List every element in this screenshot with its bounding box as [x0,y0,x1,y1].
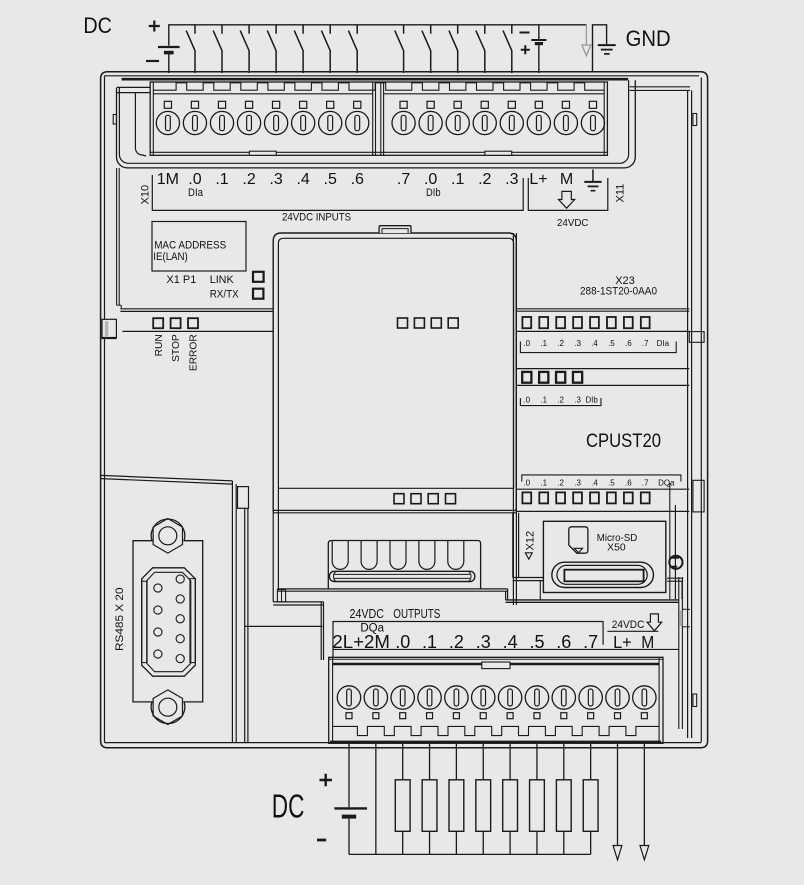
svg-text:.0: .0 [523,339,530,348]
svg-text:.4: .4 [591,478,598,487]
svg-text:.1: .1 [540,395,547,404]
svg-text:24VDC: 24VDC [350,606,385,621]
svg-text:OUTPUTS: OUTPUTS [393,606,440,621]
svg-text:.0: .0 [523,395,530,404]
svg-text:24VDC: 24VDC [557,217,589,229]
svg-text:X1 P1: X1 P1 [166,274,196,286]
svg-text:.3: .3 [574,339,581,348]
svg-text:DQa: DQa [658,478,675,487]
svg-text:.7: .7 [397,171,410,188]
svg-text:.0: .0 [395,632,410,652]
svg-text:1M: 1M [157,171,179,188]
svg-text:L+: L+ [529,171,547,188]
svg-text:.5: .5 [608,339,615,348]
svg-text:.2: .2 [557,339,564,348]
svg-text:RX/TX: RX/TX [210,289,240,301]
svg-text:ERROR: ERROR [189,334,200,371]
svg-text:L+: L+ [613,632,632,652]
svg-text:.3: .3 [505,171,518,188]
svg-text:.6: .6 [625,339,632,348]
svg-text:DIa: DIa [657,339,670,348]
svg-text:.4: .4 [591,339,598,348]
svg-text:.0: .0 [523,478,530,487]
svg-text:.7: .7 [583,632,598,652]
svg-text:.3: .3 [574,478,581,487]
svg-text:.5: .5 [324,171,337,188]
svg-text:RS485 X 20: RS485 X 20 [114,588,126,652]
svg-text:.3: .3 [269,171,282,188]
svg-text:IE(LAN): IE(LAN) [153,251,188,263]
svg-text:2L+2M: 2L+2M [332,632,390,652]
svg-text:.3: .3 [574,395,581,404]
svg-text:.2: .2 [557,395,564,404]
svg-text:X10: X10 [140,185,152,205]
svg-text:M: M [641,632,654,652]
svg-text:.2: .2 [557,478,564,487]
svg-text:.1: .1 [540,339,547,348]
svg-text:M: M [560,171,573,188]
svg-text:GND: GND [626,26,671,51]
svg-text:.4: .4 [503,632,518,652]
svg-text:.5: .5 [529,632,544,652]
svg-text:.1: .1 [451,171,464,188]
svg-text:.0: .0 [188,171,201,188]
svg-text:.2: .2 [449,632,464,652]
svg-text:.1: .1 [540,478,547,487]
svg-text:X12: X12 [524,531,536,551]
svg-text:.1: .1 [215,171,228,188]
svg-text:.2: .2 [242,171,255,188]
svg-text:MAC ADDRESS: MAC ADDRESS [154,240,226,252]
svg-text:DIb: DIb [585,395,598,404]
svg-text:.7: .7 [642,478,649,487]
svg-text:X11: X11 [615,184,627,203]
svg-text:DC: DC [272,787,305,824]
svg-text:DIa: DIa [188,187,204,199]
svg-text:.4: .4 [296,171,309,188]
svg-text:.6: .6 [625,478,632,487]
svg-text:.3: .3 [476,632,491,652]
svg-text:.7: .7 [642,339,649,348]
svg-text:288-1ST20-0AA0: 288-1ST20-0AA0 [580,286,657,298]
svg-text:.6: .6 [351,171,364,188]
svg-text:DIb: DIb [426,187,441,199]
svg-text:.2: .2 [478,171,491,188]
svg-text:24VDC INPUTS: 24VDC INPUTS [282,212,351,224]
svg-text:STOP: STOP [171,334,182,362]
svg-text:.1: .1 [422,632,437,652]
svg-text:CPUST20: CPUST20 [586,430,661,452]
svg-text:24VDC: 24VDC [612,619,645,631]
svg-text:DC: DC [83,13,112,38]
svg-text:LINK: LINK [210,274,235,286]
svg-text:.6: .6 [556,632,571,652]
svg-text:.5: .5 [608,478,615,487]
svg-text:.0: .0 [424,171,437,188]
svg-text:X50: X50 [607,542,626,554]
svg-text:RUN: RUN [154,334,165,356]
